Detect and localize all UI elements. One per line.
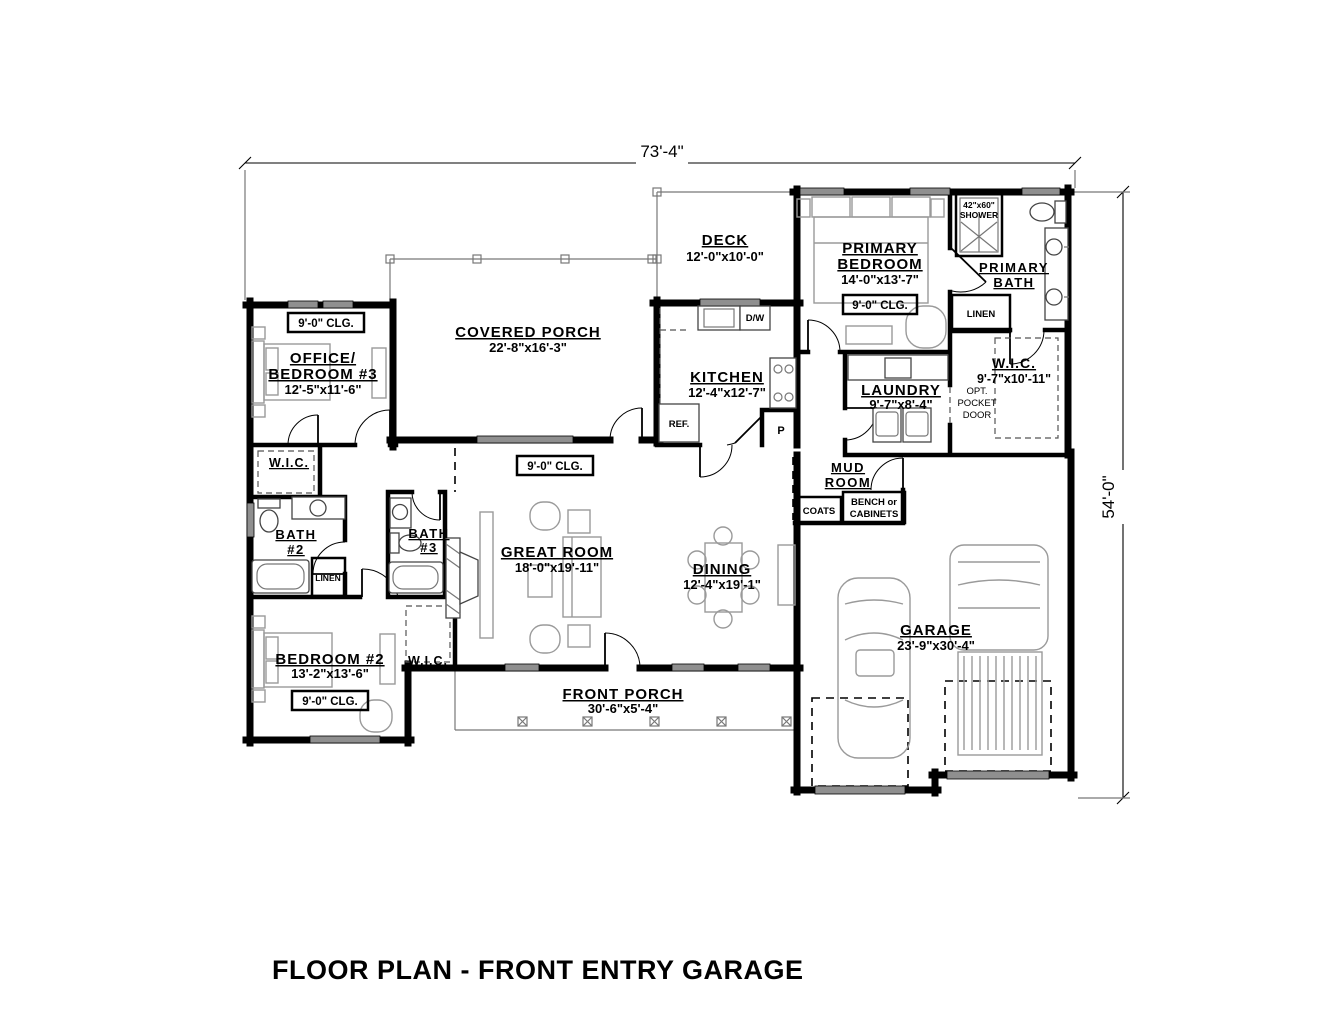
linen-bath2-label: LINEN xyxy=(315,573,341,583)
overall-height-label: 54'-0" xyxy=(1099,475,1118,518)
ceiling-tags: 9'-0" CLG. 9'-0" CLG. 9'-0" CLG. 9'-0" C… xyxy=(288,295,917,710)
front-porch-size: 30'-6"x5'-4" xyxy=(588,701,659,716)
office-label-2: BEDROOM #3 xyxy=(268,366,377,383)
porch-post xyxy=(782,717,791,726)
chair xyxy=(714,527,732,545)
floor-plan-page: 73'-4" 54'-0" xyxy=(0,0,1320,1020)
front-porch-posts xyxy=(518,717,791,726)
ref-label: REF. xyxy=(669,419,690,430)
car xyxy=(838,578,910,758)
bedroom2-wic-label: W.I.C. xyxy=(408,654,448,668)
porch-door xyxy=(610,408,642,440)
kitchen-label: KITCHEN xyxy=(690,369,764,386)
porch-post xyxy=(518,717,527,726)
headboard xyxy=(252,630,264,688)
truck-bed xyxy=(958,652,1042,755)
bath3-label-1: BATH xyxy=(408,526,449,541)
pocket-door-label-3: DOOR xyxy=(963,410,992,421)
kitchen-door xyxy=(700,445,732,477)
toilet-tank xyxy=(390,533,399,553)
window xyxy=(505,664,539,671)
garage-size: 23'-9"x30'-4" xyxy=(897,638,975,653)
office-size: 12'-5"x11'-6" xyxy=(284,382,361,397)
primary-bath-label-1: PRIMARY xyxy=(979,260,1049,275)
primary-wic-size: 9'-7"x10'-11" xyxy=(977,372,1051,386)
bathtub xyxy=(252,560,309,593)
office-door xyxy=(355,410,390,445)
bench-label-1: BENCH or xyxy=(851,497,897,508)
garage-door-left xyxy=(815,786,905,794)
bench xyxy=(846,326,892,344)
covered-porch-size: 22'-8"x16'-3" xyxy=(489,340,567,355)
toilet-tank xyxy=(258,499,280,508)
dining-label: DINING xyxy=(693,561,752,578)
garage-door-apron-left xyxy=(812,698,908,786)
window xyxy=(247,503,254,537)
office-wic-door xyxy=(288,415,318,445)
bath3-label-2: #3 xyxy=(420,540,437,555)
dining-size: 12'-4"x19'-1" xyxy=(683,577,761,592)
office-label-1: OFFICE/ xyxy=(290,350,356,367)
chair xyxy=(714,610,732,628)
pocket-door-label-2: POCKET xyxy=(957,398,996,409)
ceiling-tag-office: 9'-0" CLG. xyxy=(288,313,364,332)
ceiling-tag-great-room: 9'-0" CLG. xyxy=(517,456,593,475)
doors xyxy=(288,248,1044,668)
chair xyxy=(360,700,392,732)
porch-post xyxy=(650,717,659,726)
great-room-size: 18'-0"x19'-11" xyxy=(515,560,599,575)
primary-wic-label: W.I.C. xyxy=(992,355,1036,371)
window xyxy=(738,664,770,671)
sink xyxy=(1046,239,1062,255)
primary-wic-shelving xyxy=(995,338,1058,438)
coats-label: COATS xyxy=(803,506,836,517)
window xyxy=(672,664,704,671)
kitchen-size: 12'-4"x12'-7" xyxy=(688,385,766,400)
mud-room-label-1: MUD xyxy=(831,460,865,475)
great-room-furniture xyxy=(528,502,601,653)
svg-text:9'-0" CLG.: 9'-0" CLG. xyxy=(302,696,357,708)
primary-bedroom-door xyxy=(808,320,840,352)
nightstand xyxy=(252,616,265,628)
sheet-title: FLOOR PLAN - FRONT ENTRY GARAGE xyxy=(272,955,804,985)
overall-width-label: 73'-4" xyxy=(640,142,683,161)
armchair xyxy=(530,625,560,653)
svg-text:9'-0" CLG.: 9'-0" CLG. xyxy=(527,461,582,473)
linen-primary-label: LINEN xyxy=(967,309,996,320)
bathtub xyxy=(389,562,443,593)
bath2-label-2: #2 xyxy=(287,542,304,557)
ceiling-tag-primary: 9'-0" CLG. xyxy=(843,295,917,314)
bench-label-2: CABINETS xyxy=(850,509,899,520)
porch-post xyxy=(717,717,726,726)
great-room-label: GREAT ROOM xyxy=(501,544,613,561)
side-table xyxy=(568,625,590,647)
dimension-overall-height: 54'-0" xyxy=(1074,186,1130,804)
laundry-size: 9'-7"x8'-4" xyxy=(869,397,932,412)
svg-text:9'-0" CLG.: 9'-0" CLG. xyxy=(298,318,353,330)
office-wic-label: W.I.C. xyxy=(269,456,309,470)
primary-bedroom-label-1: PRIMARY xyxy=(842,240,918,257)
range xyxy=(770,358,796,408)
covered-porch-label: COVERED PORCH xyxy=(455,324,601,341)
nightstand xyxy=(252,327,265,339)
sink xyxy=(1046,289,1062,305)
ceiling-tag-bedroom2: 9'-0" CLG. xyxy=(292,691,368,710)
chair xyxy=(906,306,946,348)
window xyxy=(800,188,844,195)
pantry-door xyxy=(727,416,762,445)
firebox xyxy=(460,552,478,604)
nightstand xyxy=(931,199,944,217)
dimension-overall-width: 73'-4" xyxy=(239,142,1081,300)
sink xyxy=(310,500,326,516)
sliding-door xyxy=(477,436,573,443)
side-table xyxy=(568,510,590,533)
svg-text:9'-0" CLG.: 9'-0" CLG. xyxy=(852,300,907,312)
shower-label-2: SHOWER xyxy=(960,210,998,220)
bath3-door xyxy=(412,492,440,520)
front-door xyxy=(605,633,640,668)
deck-label: DECK xyxy=(702,232,749,249)
armchair xyxy=(530,502,560,530)
bath2-label-1: BATH xyxy=(275,527,316,542)
garage-door-apron-right xyxy=(945,681,1051,771)
primary-bedroom-size: 14'-0"x13'-7" xyxy=(841,272,919,287)
garage-entry-door xyxy=(871,458,903,490)
window xyxy=(910,188,950,195)
covered-porch-outline xyxy=(386,255,657,300)
window xyxy=(1022,188,1060,195)
nightstand xyxy=(252,690,265,702)
window xyxy=(288,301,318,308)
sideboard xyxy=(778,545,795,605)
window xyxy=(310,736,380,743)
pocket-door-label-1: OPT. xyxy=(966,386,987,397)
primary-bedroom-label-2: BEDROOM xyxy=(837,256,922,273)
window xyxy=(700,299,760,306)
utility-sink xyxy=(885,358,911,378)
laundry-door xyxy=(845,408,877,440)
garage-label: GARAGE xyxy=(900,622,972,639)
primary-bath-label-2: BATH xyxy=(993,275,1034,290)
sink xyxy=(393,505,408,520)
deck-size: 12'-0"x10'-0" xyxy=(686,249,764,264)
dw-label: D/W xyxy=(746,313,765,324)
shower-label-1: 42"x60" xyxy=(963,200,995,210)
garage-door-right xyxy=(947,771,1049,779)
nightstand xyxy=(252,405,265,417)
toilet-tank xyxy=(1055,201,1066,223)
bedroom2-size: 13'-2"x13'-6" xyxy=(291,666,369,681)
headboard xyxy=(252,341,264,403)
window xyxy=(323,301,353,308)
floor-plan-drawing: 73'-4" 54'-0" xyxy=(0,0,1320,1020)
porch-post xyxy=(583,717,592,726)
toilet xyxy=(1030,203,1054,221)
media-console xyxy=(480,512,493,638)
mud-room-label-2: ROOM xyxy=(825,475,871,490)
pantry-label: P xyxy=(777,425,784,437)
